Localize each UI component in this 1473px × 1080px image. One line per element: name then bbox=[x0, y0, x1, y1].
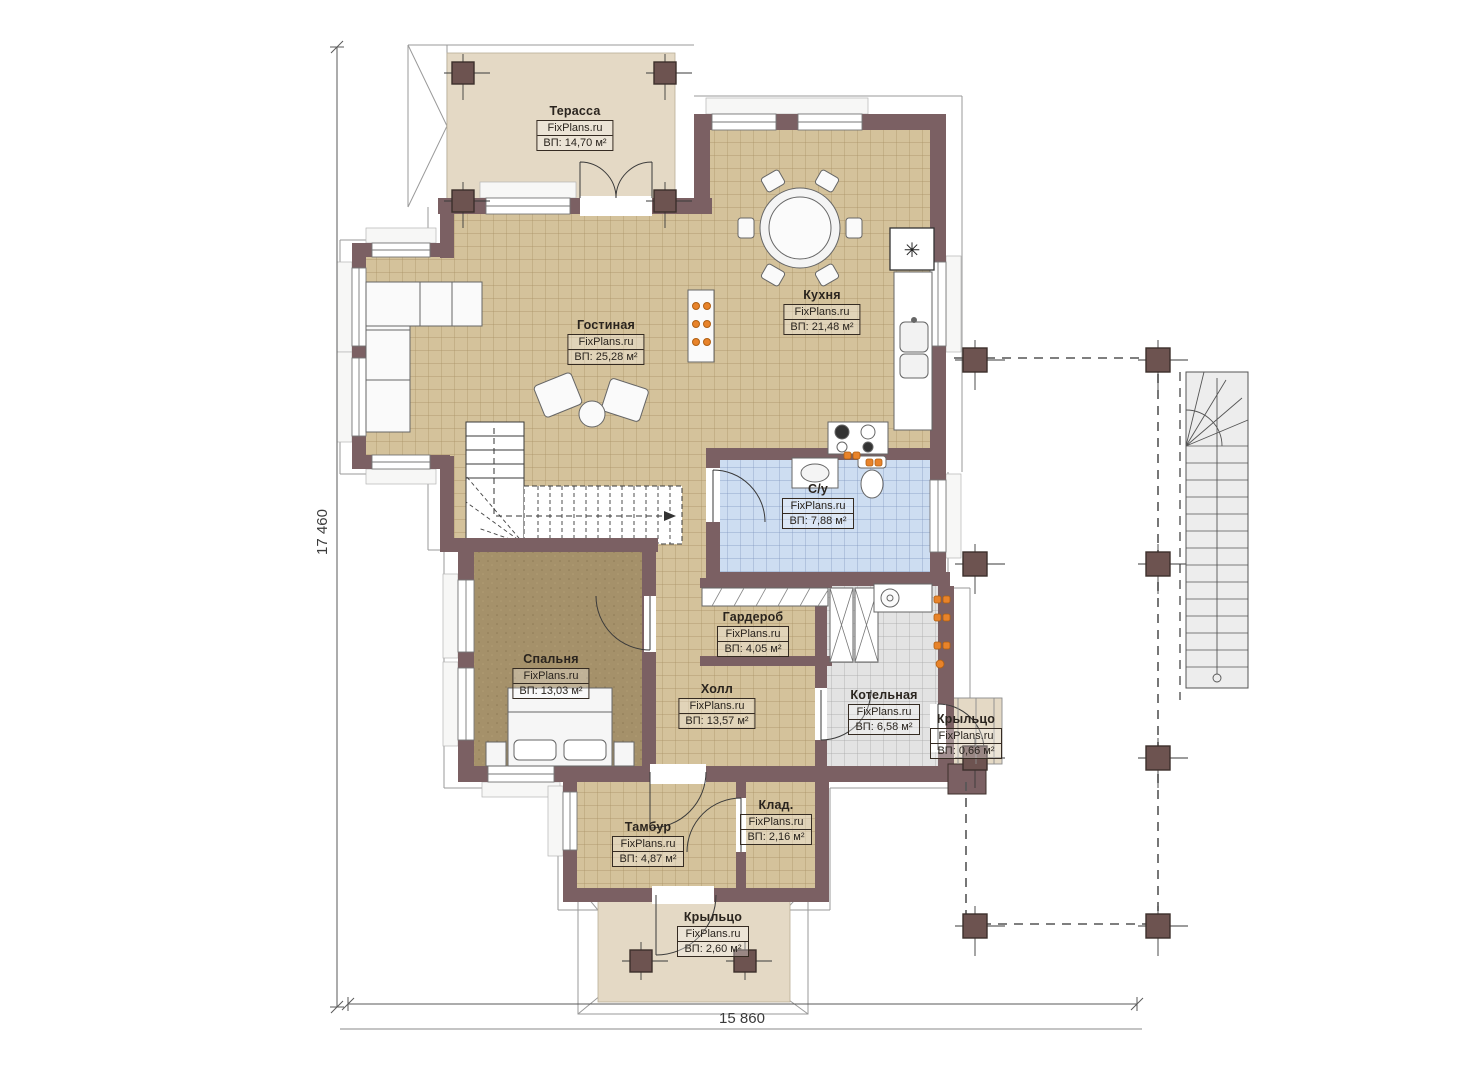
room-name: Терасса bbox=[536, 104, 613, 118]
room-name: Клад. bbox=[740, 798, 812, 812]
floor-plan-canvas: 17 460 15 860 ✳ Терасса FixPlans.ru ВП: … bbox=[0, 0, 1473, 1080]
room-label-porch-bottom: Крыльцо FixPlans.ru ВП: 2,60 м² bbox=[677, 910, 749, 957]
brand-watermark: FixPlans.ru bbox=[783, 499, 853, 514]
room-label-wardrobe: Гардероб FixPlans.ru ВП: 4,05 м² bbox=[717, 610, 789, 657]
room-label-vestibule: Тамбур FixPlans.ru ВП: 4,87 м² bbox=[612, 820, 684, 867]
fireplace bbox=[688, 290, 714, 362]
room-area: ВП: 0,66 м² bbox=[931, 744, 1001, 758]
room-name: Гостиная bbox=[567, 318, 644, 332]
room-area: ВП: 25,28 м² bbox=[568, 350, 643, 364]
room-label-bathroom: С/у FixPlans.ru ВП: 7,88 м² bbox=[782, 482, 854, 529]
brand-watermark: FixPlans.ru bbox=[568, 335, 643, 350]
kitchen-counter bbox=[894, 272, 932, 430]
room-label-porch-right: Крыльцо FixPlans.ru ВП: 0,66 м² bbox=[930, 712, 1002, 759]
room-label-hall: Холл FixPlans.ru ВП: 13,57 м² bbox=[678, 682, 755, 729]
brand-watermark: FixPlans.ru bbox=[784, 305, 859, 320]
room-area: ВП: 21,48 м² bbox=[784, 320, 859, 334]
room-area: ВП: 2,16 м² bbox=[741, 830, 811, 844]
room-name: Крыльцо bbox=[677, 910, 749, 924]
bed bbox=[486, 688, 634, 766]
room-label-bedroom: Спальня FixPlans.ru ВП: 13,03 м² bbox=[512, 652, 589, 699]
brand-watermark: FixPlans.ru bbox=[613, 837, 683, 852]
pergola-outline bbox=[954, 340, 1188, 956]
chimney-flue-icon: ✳ bbox=[904, 240, 921, 262]
brand-watermark: FixPlans.ru bbox=[537, 121, 612, 136]
dimension-height-label: 17 460 bbox=[314, 509, 331, 555]
room-area: ВП: 6,58 м² bbox=[849, 720, 919, 734]
room-area: ВП: 4,05 м² bbox=[718, 642, 788, 656]
room-area: ВП: 2,60 м² bbox=[678, 942, 748, 956]
brand-watermark: FixPlans.ru bbox=[741, 815, 811, 830]
room-label-living: Гостиная FixPlans.ru ВП: 25,28 м² bbox=[567, 318, 644, 365]
brand-watermark: FixPlans.ru bbox=[931, 729, 1001, 744]
room-area: ВП: 14,70 м² bbox=[537, 136, 612, 150]
room-area: ВП: 7,88 м² bbox=[783, 514, 853, 528]
room-label-kitchen: Кухня FixPlans.ru ВП: 21,48 м² bbox=[783, 288, 860, 335]
room-name: Крыльцо bbox=[930, 712, 1002, 726]
brand-watermark: FixPlans.ru bbox=[718, 627, 788, 642]
room-area: ВП: 13,03 м² bbox=[513, 684, 588, 698]
room-name: Котельная bbox=[848, 688, 920, 702]
room-label-boiler: Котельная FixPlans.ru ВП: 6,58 м² bbox=[848, 688, 920, 735]
room-label-terrace: Терасса FixPlans.ru ВП: 14,70 м² bbox=[536, 104, 613, 151]
external-staircase bbox=[1186, 372, 1248, 688]
room-name: Гардероб bbox=[717, 610, 789, 624]
boiler-equipment bbox=[874, 584, 932, 612]
room-area: ВП: 4,87 м² bbox=[613, 852, 683, 866]
room-label-storage: Клад. FixPlans.ru ВП: 2,16 м² bbox=[740, 798, 812, 845]
room-name: Спальня bbox=[512, 652, 589, 666]
dimension-width-label: 15 860 bbox=[719, 1010, 765, 1027]
brand-watermark: FixPlans.ru bbox=[513, 669, 588, 684]
brand-watermark: FixPlans.ru bbox=[849, 705, 919, 720]
room-name: Кухня bbox=[783, 288, 860, 302]
brand-watermark: FixPlans.ru bbox=[678, 927, 748, 942]
room-name: Холл bbox=[678, 682, 755, 696]
room-name: С/у bbox=[782, 482, 854, 496]
room-area: ВП: 13,57 м² bbox=[679, 714, 754, 728]
brand-watermark: FixPlans.ru bbox=[679, 699, 754, 714]
stove bbox=[828, 422, 888, 454]
room-name: Тамбур bbox=[612, 820, 684, 834]
coffee-table bbox=[579, 401, 605, 427]
